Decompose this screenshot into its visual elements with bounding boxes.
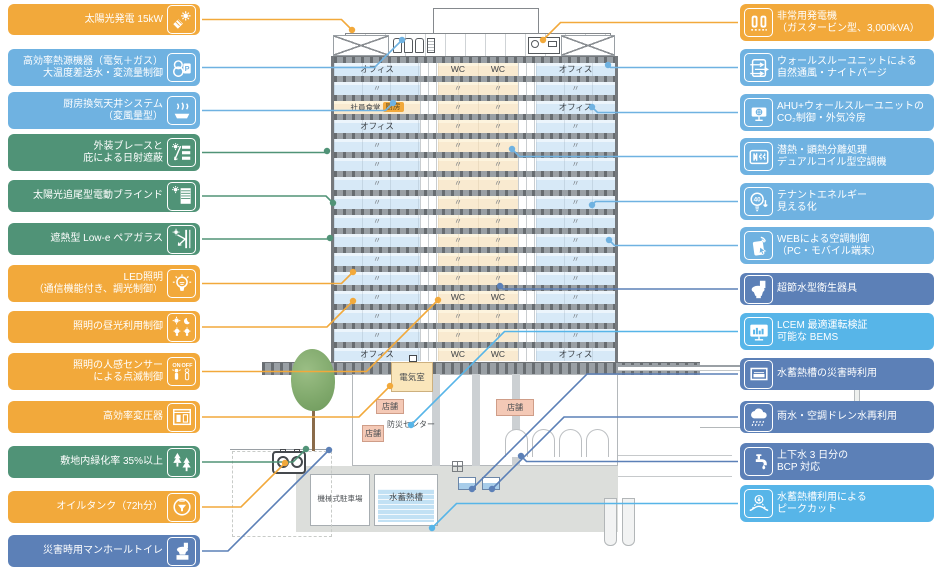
room-cell: オフィス bbox=[334, 120, 420, 133]
room-cell: WC bbox=[438, 291, 478, 304]
room-label: WC bbox=[438, 291, 478, 304]
room-label: WC bbox=[478, 291, 518, 304]
room-label: 〃 bbox=[536, 196, 615, 209]
room-cell: 〃 bbox=[536, 234, 615, 247]
room-label: オフィス bbox=[536, 101, 615, 114]
room-cell: 〃 bbox=[438, 139, 478, 152]
disaster-center-label: 防災センター bbox=[378, 420, 444, 429]
core-shaft-cell bbox=[518, 120, 536, 133]
room-label: 〃 bbox=[438, 101, 478, 114]
feature-label-left-8: 照明の人感センサー による点滅制御ONOFF bbox=[8, 353, 200, 390]
feature-label-text: 超節水型衛生器具 bbox=[773, 283, 930, 295]
feature-label-text: 敷地内緑化率 35%以上 bbox=[12, 456, 167, 468]
floor-13: オフィス〃〃〃 bbox=[334, 114, 615, 133]
room-cell: 〃 bbox=[334, 196, 420, 209]
core-shaft-cell bbox=[420, 82, 438, 95]
electrical-room-label: 電気室 bbox=[392, 373, 432, 383]
room-cell: 〃 bbox=[536, 139, 615, 152]
core-shaft-cell bbox=[420, 329, 438, 342]
floor-14: 社員食堂 厨房〃〃オフィス bbox=[334, 95, 615, 114]
feature-label-left-11: オイルタンク（72h分） bbox=[8, 491, 200, 523]
room-label: WC bbox=[478, 348, 518, 361]
room-cell: 〃 bbox=[334, 234, 420, 247]
wall-through-unit-icon bbox=[744, 53, 773, 82]
room-cell: 〃 bbox=[478, 158, 518, 171]
core-shaft-cell bbox=[420, 234, 438, 247]
feature-label-left-1: 高効率熱源機器（電気＋ガス） 大温度差送水・変流量制御P bbox=[8, 49, 200, 86]
room-cell: 〃 bbox=[536, 196, 615, 209]
room-label: 〃 bbox=[478, 234, 518, 247]
room-cell: 〃 bbox=[478, 196, 518, 209]
room-cell: 〃 bbox=[536, 253, 615, 266]
room-label: 〃 bbox=[478, 196, 518, 209]
kitchen-room-chip: 厨房 bbox=[383, 102, 404, 112]
room-label: 〃 bbox=[478, 310, 518, 323]
svg-text:P: P bbox=[184, 64, 189, 73]
room-label: 〃 bbox=[438, 329, 478, 342]
room-cell: オフィス bbox=[334, 348, 420, 361]
room-cell: 〃 bbox=[438, 177, 478, 190]
svg-text:40: 40 bbox=[753, 196, 761, 203]
core-shaft-cell bbox=[518, 253, 536, 266]
room-label: オフィス bbox=[536, 63, 615, 76]
room-label: 〃 bbox=[478, 253, 518, 266]
kitchen-vent-icon bbox=[167, 96, 196, 125]
room-cell: 〃 bbox=[334, 139, 420, 152]
feature-label-text: 雨水・空調ドレン水再利用 bbox=[773, 411, 930, 423]
core-shaft-cell bbox=[518, 139, 536, 152]
room-cell: 〃 bbox=[438, 82, 478, 95]
room-cell: 〃 bbox=[478, 120, 518, 133]
floor-12: 〃〃〃〃 bbox=[334, 133, 615, 152]
room-label: 〃 bbox=[478, 101, 518, 114]
station-arch bbox=[586, 429, 609, 457]
feature-label-text: 外装ブレースと 庇による日射遮蔽 bbox=[12, 141, 167, 165]
roof-brace-left bbox=[333, 35, 389, 56]
room-cell: 〃 bbox=[536, 310, 615, 323]
connector-line bbox=[202, 151, 327, 153]
room-cell: オフィス bbox=[334, 63, 420, 76]
thermal-storage-tank: 水蓄熱槽 bbox=[374, 474, 438, 526]
floor-15: 〃〃〃〃 bbox=[334, 76, 615, 95]
core-shaft-cell bbox=[420, 177, 438, 190]
feature-label-right-4: 40テナントエネルギー 見える化 bbox=[740, 183, 934, 220]
feature-label-right-9: 雨水・空調ドレン水再利用 bbox=[740, 401, 934, 433]
core-shaft-cell bbox=[518, 63, 536, 76]
room-cell: 〃 bbox=[334, 272, 420, 285]
room-label: WC bbox=[478, 63, 518, 76]
room-cell: 〃 bbox=[478, 101, 518, 114]
room-cell: 〃 bbox=[536, 82, 615, 95]
feature-label-text: オイルタンク（72h分） bbox=[12, 501, 167, 513]
room-cell: 社員食堂 厨房 bbox=[334, 101, 420, 114]
room-label: 〃 bbox=[536, 291, 615, 304]
connector-line bbox=[608, 65, 738, 68]
room-cell: 〃 bbox=[438, 215, 478, 228]
thermal-tank-label: 水蓄熱槽 bbox=[375, 493, 437, 503]
room-cell: WC bbox=[478, 348, 518, 361]
connector-line bbox=[202, 238, 330, 239]
room-label: 〃 bbox=[438, 120, 478, 133]
room-cell: 〃 bbox=[334, 291, 420, 304]
room-label: 〃 bbox=[334, 234, 420, 247]
solar-panel-icon bbox=[167, 5, 196, 34]
core-shaft-cell bbox=[420, 158, 438, 171]
feature-label-left-10: 敷地内緑化率 35%以上 bbox=[8, 446, 200, 478]
core-shaft-cell bbox=[420, 139, 438, 152]
room-label: 〃 bbox=[334, 177, 420, 190]
shop-label: 店舗 bbox=[497, 403, 533, 412]
room-label: 〃 bbox=[536, 329, 615, 342]
core-shaft-cell bbox=[420, 120, 438, 133]
feature-label-text: 照明の人感センサー による点滅制御 bbox=[12, 360, 167, 384]
feature-label-text: 非常用発電機 （ガスタービン型、3,000kVA） bbox=[773, 11, 930, 35]
room-cell: 〃 bbox=[536, 158, 615, 171]
feature-label-text: 潜熱・顕熱分離処理 デュアルコイル型空調機 bbox=[773, 145, 930, 169]
underground-line bbox=[618, 455, 732, 456]
room-cell: 〃 bbox=[438, 158, 478, 171]
feature-label-right-11: 水蓄熱槽利用による ピークカット bbox=[740, 485, 934, 522]
room-label: 〃 bbox=[536, 177, 615, 190]
room-cell: 〃 bbox=[536, 329, 615, 342]
room-cell: 〃 bbox=[438, 310, 478, 323]
room-cell: 〃 bbox=[438, 234, 478, 247]
room-label: 〃 bbox=[478, 215, 518, 228]
core-shaft-cell bbox=[518, 215, 536, 228]
room-label: 〃 bbox=[334, 82, 420, 95]
feature-label-left-6: LED照明 （通信機能付き、調光制御） bbox=[8, 265, 200, 302]
room-cell: 〃 bbox=[438, 272, 478, 285]
core-column bbox=[472, 374, 480, 466]
feature-label-right-2: AHU+ウォールスルーユニットの CO₂制御・外気冷房 bbox=[740, 94, 934, 131]
room-label: 〃 bbox=[438, 215, 478, 228]
oil-tank-icon bbox=[167, 493, 196, 522]
feature-label-text: 水蓄熱槽の災害時利用 bbox=[773, 368, 930, 380]
feature-label-left-0: 太陽光発電 15kW bbox=[8, 4, 200, 35]
feature-label-left-2: 厨房換気天井システム （変風量型） bbox=[8, 92, 200, 129]
feature-label-left-3: 外装ブレースと 庇による日射遮蔽 bbox=[8, 134, 200, 171]
room-label: 〃 bbox=[438, 158, 478, 171]
room-cell: 〃 bbox=[478, 215, 518, 228]
core-shaft-cell bbox=[518, 177, 536, 190]
feature-label-text: LED照明 （通信機能付き、調光制御） bbox=[12, 272, 167, 296]
room-cell: 〃 bbox=[438, 101, 478, 114]
rooftop-penthouse-upper bbox=[433, 8, 539, 34]
room-label: 〃 bbox=[334, 158, 420, 171]
room-cell: 〃 bbox=[478, 272, 518, 285]
storage-tank-icon bbox=[744, 360, 773, 389]
core-shaft-cell bbox=[420, 215, 438, 228]
room-label: 〃 bbox=[478, 177, 518, 190]
station-arch bbox=[559, 429, 582, 457]
floor-6: 〃〃〃〃 bbox=[334, 247, 615, 266]
station-arch bbox=[532, 429, 555, 457]
blind-icon bbox=[167, 182, 196, 211]
room-cell: 〃 bbox=[334, 158, 420, 171]
room-label: WC bbox=[438, 348, 478, 361]
core-shaft-cell bbox=[518, 101, 536, 114]
floor-10: 〃〃〃〃 bbox=[334, 171, 615, 190]
rain-icon bbox=[744, 403, 773, 432]
room-cell: 〃 bbox=[334, 82, 420, 95]
floor-2: 〃〃〃〃 bbox=[334, 323, 615, 342]
feature-label-right-0: 非常用発電機 （ガスタービン型、3,000kVA） bbox=[740, 4, 934, 41]
core-shaft-cell bbox=[420, 63, 438, 76]
room-label: 〃 bbox=[334, 139, 420, 152]
floor-4: 〃WCWC〃 bbox=[334, 285, 615, 304]
core-shaft-cell bbox=[420, 310, 438, 323]
room-label: 〃 bbox=[478, 120, 518, 133]
shop-label: 店舗 bbox=[363, 429, 383, 438]
feature-label-right-10: 上下水 3 日分の BCP 対応 bbox=[740, 443, 934, 480]
shop-label: 店舗 bbox=[377, 402, 403, 411]
room-cell: 〃 bbox=[438, 120, 478, 133]
room-cell: 〃 bbox=[334, 310, 420, 323]
feature-label-left-12: 災害時用マンホールトイレ bbox=[8, 535, 200, 567]
floor-9: 〃〃〃〃 bbox=[334, 190, 615, 209]
svg-text:OFF: OFF bbox=[181, 362, 192, 368]
room-label: 〃 bbox=[536, 158, 615, 171]
core-shaft-cell bbox=[420, 348, 438, 361]
room-label: 〃 bbox=[536, 215, 615, 228]
room-cell: オフィス bbox=[536, 101, 615, 114]
dual-coil-icon bbox=[744, 142, 773, 171]
feature-label-text: 上下水 3 日分の BCP 対応 bbox=[773, 450, 930, 474]
room-cell: 〃 bbox=[536, 215, 615, 228]
room-cell: 〃 bbox=[478, 177, 518, 190]
room-cell: WC bbox=[438, 348, 478, 361]
connector-dot bbox=[324, 148, 330, 154]
room-cell: 〃 bbox=[334, 329, 420, 342]
room-cell: 〃 bbox=[536, 291, 615, 304]
room-cell: 〃 bbox=[478, 139, 518, 152]
low-e-glass-icon bbox=[167, 225, 196, 254]
feature-label-text: 太陽光追尾型電動ブラインド bbox=[12, 190, 167, 202]
manhole-toilet-icon bbox=[167, 537, 196, 566]
connector-line bbox=[202, 20, 352, 31]
room-cell: 〃 bbox=[438, 253, 478, 266]
room-cell: 〃 bbox=[334, 215, 420, 228]
core-shaft-cell bbox=[518, 196, 536, 209]
floor-5: 〃〃〃〃 bbox=[334, 266, 615, 285]
room-cell: 〃 bbox=[536, 177, 615, 190]
room-cell: 〃 bbox=[334, 177, 420, 190]
room-label: 〃 bbox=[438, 253, 478, 266]
room-cell: 〃 bbox=[438, 196, 478, 209]
feature-label-right-7: LCEM 最適運転検証 可能な BEMS bbox=[740, 313, 934, 350]
room-label: 〃 bbox=[536, 310, 615, 323]
feature-label-text: ウォールスルーユニットによる 自然通風・ナイトパージ bbox=[773, 56, 930, 80]
feature-label-left-9: 高効率変圧器 bbox=[8, 401, 200, 433]
room-cell: オフィス bbox=[536, 63, 615, 76]
rooftop-chiller-unit bbox=[404, 38, 413, 53]
floor-7: 〃〃〃〃 bbox=[334, 228, 615, 247]
core-shaft-cell bbox=[420, 101, 438, 114]
rooftop-chiller-unit bbox=[415, 38, 424, 53]
room-cell: 〃 bbox=[334, 253, 420, 266]
feature-label-right-6: 超節水型衛生器具 bbox=[740, 273, 934, 305]
feature-label-right-5: WEBによる空調制御 （PC・モバイル端末） bbox=[740, 227, 934, 264]
floor-16: オフィスWCWCオフィス bbox=[334, 57, 615, 76]
led-bulb-icon bbox=[167, 269, 196, 298]
floor-3: 〃〃〃〃 bbox=[334, 304, 615, 323]
room-label: 〃 bbox=[536, 234, 615, 247]
heat-pump-icon: P bbox=[167, 53, 196, 82]
feature-label-text: 高効率熱源機器（電気＋ガス） 大温度差送水・変流量制御 bbox=[12, 56, 167, 80]
well-pipe bbox=[604, 498, 617, 546]
room-cell: 〃 bbox=[478, 253, 518, 266]
room-cell: WC bbox=[478, 63, 518, 76]
feature-label-left-7: 照明の昼光利用制御 bbox=[8, 311, 200, 343]
room-label: 〃 bbox=[478, 158, 518, 171]
room-label: 〃 bbox=[536, 120, 615, 133]
connector-line bbox=[609, 240, 738, 246]
room-cell: WC bbox=[478, 291, 518, 304]
feature-label-text: 太陽光発電 15kW bbox=[12, 14, 167, 26]
core-shaft-cell bbox=[518, 329, 536, 342]
room-label: 〃 bbox=[438, 272, 478, 285]
room-label: 〃 bbox=[478, 139, 518, 152]
room-label: 〃 bbox=[334, 253, 420, 266]
shop-room: 店舗 bbox=[376, 399, 404, 414]
room-label: 〃 bbox=[334, 310, 420, 323]
room-label: 〃 bbox=[478, 272, 518, 285]
floor-8: 〃〃〃〃 bbox=[334, 209, 615, 228]
toilet-icon bbox=[744, 275, 773, 304]
generator-icon bbox=[744, 8, 773, 37]
occupancy-sensor-icon: ONOFF bbox=[167, 357, 196, 386]
room-cell: 〃 bbox=[536, 272, 615, 285]
room-label: 〃 bbox=[334, 196, 420, 209]
well-pipe bbox=[622, 498, 635, 546]
room-label: 〃 bbox=[478, 82, 518, 95]
core-shaft-cell bbox=[420, 196, 438, 209]
station-arch bbox=[505, 429, 528, 457]
room-label: 〃 bbox=[334, 291, 420, 304]
room-cell: 〃 bbox=[478, 329, 518, 342]
office-tower-section: オフィスWCWCオフィス〃〃〃〃社員食堂 厨房〃〃オフィスオフィス〃〃〃〃〃〃〃… bbox=[331, 56, 618, 362]
shop-room: 店舗 bbox=[496, 399, 534, 416]
room-label: WC bbox=[438, 63, 478, 76]
room-label: 〃 bbox=[438, 196, 478, 209]
room-label: 〃 bbox=[536, 82, 615, 95]
room-label: 〃 bbox=[438, 82, 478, 95]
core-shaft-cell bbox=[518, 272, 536, 285]
rooftop-cabinet bbox=[427, 38, 435, 53]
roof-brace-right bbox=[561, 35, 615, 56]
trees-icon bbox=[167, 448, 196, 477]
feature-label-right-1: ウォールスルーユニットによる 自然通風・ナイトパージ bbox=[740, 49, 934, 86]
core-shaft-cell bbox=[518, 158, 536, 171]
floor-1: オフィスWCWCオフィス bbox=[334, 342, 615, 361]
feature-label-text: 災害時用マンホールトイレ bbox=[12, 545, 167, 557]
feature-label-right-8: 水蓄熱槽の災害時利用 bbox=[740, 358, 934, 390]
transformer-symbol bbox=[409, 355, 417, 362]
feature-label-text: LCEM 最適運転検証 可能な BEMS bbox=[773, 320, 930, 344]
electrical-room: 電気室 bbox=[391, 362, 433, 392]
core-shaft-cell bbox=[518, 310, 536, 323]
feature-label-text: 高効率変圧器 bbox=[12, 411, 167, 423]
tree-foliage bbox=[291, 349, 335, 411]
connector-line bbox=[202, 196, 333, 203]
feature-label-text: 厨房換気天井システム （変風量型） bbox=[12, 99, 167, 123]
room-label: オフィス bbox=[334, 120, 420, 133]
room-label: 〃 bbox=[438, 139, 478, 152]
feature-label-text: 水蓄熱槽利用による ピークカット bbox=[773, 492, 930, 516]
room-label: 〃 bbox=[334, 329, 420, 342]
room-label: 〃 bbox=[334, 272, 420, 285]
room-label: 〃 bbox=[438, 310, 478, 323]
brace-shade-icon bbox=[167, 138, 196, 167]
room-cell: オフィス bbox=[536, 348, 615, 361]
svg-text:ON: ON bbox=[172, 362, 180, 368]
core-shaft-cell bbox=[518, 82, 536, 95]
room-label: 社員食堂 厨房 bbox=[334, 101, 420, 114]
feature-label-right-3: 潜熱・顕熱分離処理 デュアルコイル型空調機 bbox=[740, 138, 934, 175]
emergency-generator-unit bbox=[528, 37, 560, 54]
room-label: 〃 bbox=[334, 215, 420, 228]
tree-trunk bbox=[312, 405, 315, 451]
ahu-icon bbox=[744, 98, 773, 127]
room-label: 〃 bbox=[438, 177, 478, 190]
room-cell: 〃 bbox=[536, 120, 615, 133]
room-label: 〃 bbox=[536, 253, 615, 266]
transformer-icon bbox=[167, 403, 196, 432]
feature-label-text: WEBによる空調制御 （PC・モバイル端末） bbox=[773, 234, 930, 258]
feature-label-text: AHU+ウォールスルーユニットの CO₂制御・外気冷房 bbox=[773, 101, 930, 125]
room-cell: 〃 bbox=[478, 310, 518, 323]
faucet-icon bbox=[744, 447, 773, 476]
core-shaft-cell bbox=[420, 291, 438, 304]
peak-cut-icon bbox=[744, 489, 773, 518]
oil-tank-vault bbox=[272, 451, 306, 474]
bcp-water-tank bbox=[458, 477, 476, 490]
room-label: オフィス bbox=[536, 348, 615, 361]
room-label: 〃 bbox=[478, 329, 518, 342]
room-label: オフィス bbox=[334, 348, 420, 361]
room-cell: 〃 bbox=[478, 234, 518, 247]
pump-unit bbox=[452, 461, 463, 472]
feature-label-text: 照明の昼光利用制御 bbox=[12, 321, 167, 333]
bcp-water-tank bbox=[482, 477, 500, 490]
rooftop-chiller-unit bbox=[393, 38, 402, 53]
room-cell: 〃 bbox=[438, 329, 478, 342]
core-shaft-cell bbox=[420, 253, 438, 266]
feature-label-text: 遮熱型 Low-e ペアガラス bbox=[12, 233, 167, 245]
daylight-control-icon bbox=[167, 313, 196, 342]
room-cell: 〃 bbox=[478, 82, 518, 95]
core-shaft-cell bbox=[420, 272, 438, 285]
room-label: 〃 bbox=[536, 139, 615, 152]
feature-label-text: テナントエネルギー 見える化 bbox=[773, 190, 930, 214]
room-label: 〃 bbox=[536, 272, 615, 285]
web-control-icon bbox=[744, 231, 773, 260]
room-cell: WC bbox=[438, 63, 478, 76]
core-shaft-cell bbox=[518, 234, 536, 247]
room-label: 〃 bbox=[438, 234, 478, 247]
feature-label-left-4: 太陽光追尾型電動ブラインド bbox=[8, 180, 200, 212]
core-shaft-cell bbox=[518, 291, 536, 304]
feature-label-left-5: 遮熱型 Low-e ペアガラス bbox=[8, 223, 200, 255]
room-label: オフィス bbox=[334, 63, 420, 76]
eco-building-section-diagram: オフィスWCWCオフィス〃〃〃〃社員食堂 厨房〃〃オフィスオフィス〃〃〃〃〃〃〃… bbox=[0, 0, 940, 568]
energy-visualization-icon: 40 bbox=[744, 187, 773, 216]
floor-11: 〃〃〃〃 bbox=[334, 152, 615, 171]
bems-monitor-icon bbox=[744, 317, 773, 346]
core-shaft-cell bbox=[518, 348, 536, 361]
